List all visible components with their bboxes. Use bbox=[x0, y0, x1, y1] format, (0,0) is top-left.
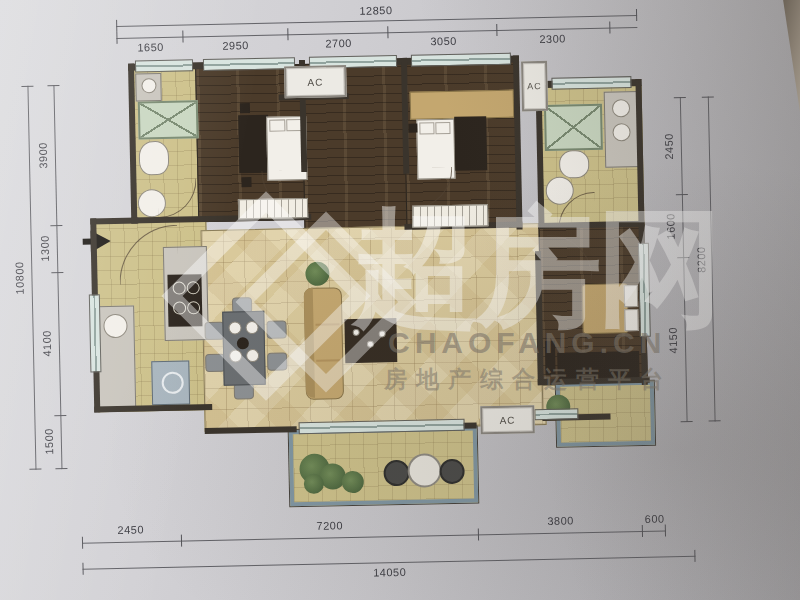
dim-tick bbox=[677, 257, 689, 258]
bay-window bbox=[412, 204, 488, 228]
ac-label: AC bbox=[527, 81, 542, 91]
master-pillow bbox=[624, 285, 638, 307]
dim-label: 3900 bbox=[37, 142, 50, 169]
dim-tick bbox=[29, 469, 41, 470]
dim-tick bbox=[54, 415, 66, 416]
master-bed bbox=[582, 283, 629, 334]
bedroom1-nightstand bbox=[240, 103, 250, 113]
dim-label: 600 bbox=[645, 513, 665, 525]
dim-label: 4150 bbox=[667, 327, 680, 354]
window bbox=[411, 53, 511, 67]
dim-label: 4100 bbox=[41, 330, 54, 357]
dim-label: 2300 bbox=[539, 32, 566, 45]
dim-tick bbox=[642, 525, 643, 537]
dim-label: 2450 bbox=[117, 523, 144, 536]
dim-line bbox=[82, 530, 666, 543]
ac-label: AC bbox=[499, 414, 515, 425]
dim-tick bbox=[694, 550, 695, 562]
bedroom2-pillow bbox=[435, 122, 450, 134]
dim-tick bbox=[665, 524, 666, 536]
window bbox=[89, 294, 102, 372]
dim-tick bbox=[709, 420, 721, 421]
dim-tick bbox=[55, 468, 67, 469]
dim-line bbox=[708, 96, 716, 421]
dim-label: 3050 bbox=[430, 35, 457, 48]
shower-left bbox=[138, 100, 199, 139]
bedroom2-baywindow-seat bbox=[410, 90, 515, 120]
dim-line bbox=[27, 86, 36, 470]
window bbox=[638, 243, 651, 337]
dining-chair bbox=[266, 320, 286, 338]
wall bbox=[94, 404, 212, 412]
dim-tick bbox=[636, 9, 637, 21]
floorplan-drawing: AC AC AC 12850 1650 2950 2700 3050 2300 … bbox=[0, 0, 800, 600]
ac-platform-bottom: AC bbox=[480, 405, 535, 434]
shower-right bbox=[544, 104, 603, 151]
toilet-left-icon bbox=[139, 141, 170, 176]
floorplan-photo: AC AC AC 12850 1650 2950 2700 3050 2300 … bbox=[0, 0, 800, 600]
dining-chair bbox=[234, 383, 254, 399]
dim-tick bbox=[387, 26, 388, 38]
dim-tick bbox=[681, 421, 693, 422]
bedroom1-wardrobe bbox=[238, 115, 269, 174]
dining-chair bbox=[267, 352, 287, 370]
dim-tick bbox=[496, 24, 497, 36]
window bbox=[551, 76, 631, 90]
dim-tick bbox=[674, 97, 686, 98]
window bbox=[203, 57, 295, 71]
dim-tick bbox=[676, 194, 688, 195]
dim-label: 2450 bbox=[663, 133, 676, 160]
toilet-right-icon bbox=[559, 150, 590, 179]
dim-tick bbox=[21, 86, 33, 87]
bedroom2-wardrobe bbox=[454, 116, 487, 171]
dim-tick bbox=[287, 28, 288, 40]
dim-label: 7200 bbox=[316, 519, 343, 532]
dim-line bbox=[116, 15, 637, 27]
ac-platform-right: AC bbox=[521, 61, 548, 112]
dim-label: 3800 bbox=[547, 514, 574, 527]
dim-label-bottom-total: 14050 bbox=[373, 566, 406, 579]
dim-line bbox=[53, 85, 62, 469]
dim-label: 1650 bbox=[137, 41, 164, 54]
dim-tick bbox=[82, 537, 83, 549]
dim-tick bbox=[181, 535, 182, 547]
dim-label: 2700 bbox=[325, 37, 352, 50]
dim-tick bbox=[116, 20, 117, 32]
dim-tick bbox=[116, 32, 117, 44]
dim-line bbox=[680, 97, 688, 422]
master-tv bbox=[545, 341, 556, 375]
dim-tick bbox=[50, 225, 62, 226]
dim-tick bbox=[51, 272, 63, 273]
window bbox=[534, 408, 578, 420]
dim-tick bbox=[609, 22, 610, 34]
dim-tick bbox=[82, 563, 83, 575]
dim-label-top-total: 12850 bbox=[359, 4, 392, 17]
dim-tick bbox=[182, 30, 183, 42]
dim-label: 1600 bbox=[664, 213, 677, 240]
ac-platform-top: AC bbox=[284, 65, 347, 98]
ac-label: AC bbox=[307, 76, 323, 87]
dim-label-left-total: 10800 bbox=[13, 261, 26, 294]
wall bbox=[205, 426, 297, 434]
dim-label: 1500 bbox=[43, 428, 56, 455]
window bbox=[135, 59, 193, 72]
dim-label-right-total: 8200 bbox=[695, 246, 708, 273]
dim-tick bbox=[47, 85, 59, 86]
dim-label: 1300 bbox=[39, 235, 52, 262]
dim-tick bbox=[478, 528, 479, 540]
dim-tick bbox=[702, 96, 714, 97]
bay-window bbox=[238, 198, 308, 219]
bedroom2-pillow bbox=[419, 122, 434, 134]
master-pillow bbox=[624, 309, 638, 331]
bedroom1-nightstand bbox=[241, 177, 251, 187]
bedroom2-nightstand bbox=[408, 124, 417, 133]
bedroom1-pillow bbox=[269, 119, 285, 131]
dim-label: 2950 bbox=[222, 39, 249, 52]
